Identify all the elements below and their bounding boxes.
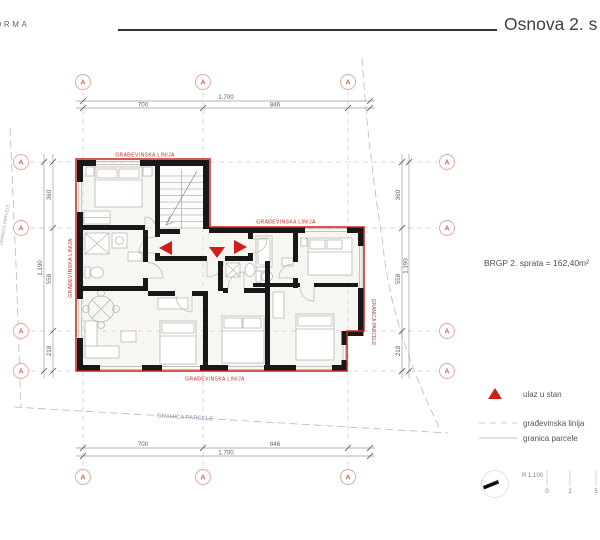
dim-700-bottom: 700 [138,441,149,448]
dim-558-left: 558 [46,273,53,284]
parcel-line-label-right: GRANICA PARCELE [370,299,376,347]
scale-tick-0: 0 [545,489,549,495]
scale-tick-5: 5 [594,489,598,495]
legend-entrance-label: ulaz u stan [523,390,562,399]
svg-text:A: A [445,329,450,336]
dim-1190-right: 1.190 [403,258,410,274]
dim-360-right: 360 [395,189,402,200]
grid-marker: A [76,470,91,485]
grid-marker: A [14,221,29,236]
grid-marker: A [440,221,455,236]
dim-1700-top: 1.700 [218,94,234,101]
grid-marker: A [14,324,29,339]
grid-marker: A [440,364,455,379]
area-note: BRGP 2. sprata = 162,40m² [484,258,589,268]
svg-text:A: A [201,475,206,482]
building-line-label-mid: GRAĐEVINSKA LINIJA [256,220,316,226]
dim-360-left: 360 [46,189,53,200]
svg-text:A: A [19,226,24,233]
scale-tick-2: 2 [568,489,572,495]
parcel-line-label-left: GRANICA PARCELE [0,204,11,246]
grid-marker: A [14,364,29,379]
dim-218-right: 218 [395,345,402,356]
dim-1190-left: 1.190 [37,260,44,276]
grid-marker: A [341,470,356,485]
dim-846-top: 846 [270,102,281,109]
dim-846-bottom: 846 [270,441,281,448]
legend-parcel-line-label: granica parcele [523,434,578,443]
grid-marker: A [196,75,211,90]
parcel-line-bottom [14,407,448,433]
staircase [160,166,203,229]
grid-marker: A [440,324,455,339]
svg-text:A: A [445,369,450,376]
scale-ratio-label: R 1:100 [522,473,544,479]
entrance-legend-icon [488,388,502,399]
svg-text:A: A [346,80,351,87]
svg-text:A: A [81,80,86,87]
dim-700-top: 700 [138,102,149,109]
floor-plan-canvas: A A A A A A A A A A A A A A [0,0,600,540]
grid-marker: A [440,155,455,170]
dim-558-right: 558 [395,273,402,284]
svg-text:A: A [81,475,86,482]
svg-text:A: A [445,226,450,233]
dim-1700-bottom: 1.700 [218,450,234,457]
svg-text:A: A [19,160,24,167]
grid-marker: A [341,75,356,90]
building-line-label-bottom: GRAĐEVINSKA LINIJA [185,377,245,383]
svg-text:A: A [201,80,206,87]
grid-marker: A [14,155,29,170]
parcel-line-right [362,58,441,431]
svg-text:A: A [346,475,351,482]
svg-text:A: A [445,160,450,167]
building-line-label-top: GRAĐEVINSKA LINIJA [115,153,175,159]
north-scale: R 1:100 0 2 5 [482,470,599,498]
grid-marker: A [196,470,211,485]
building-line-label-left: GRAĐEVINSKA LINIJA [68,238,74,298]
dim-218-left: 218 [46,345,53,356]
svg-text:A: A [19,329,24,336]
legend: ulaz u stan građevinska linija granica p… [479,388,585,443]
svg-text:A: A [19,369,24,376]
legend-building-line-label: građevinska linija [523,419,585,428]
grid-marker: A [76,75,91,90]
parcel-line-label-bottom: GRANICA PARCELE [157,414,213,423]
scale-bar-ticks [547,470,596,486]
